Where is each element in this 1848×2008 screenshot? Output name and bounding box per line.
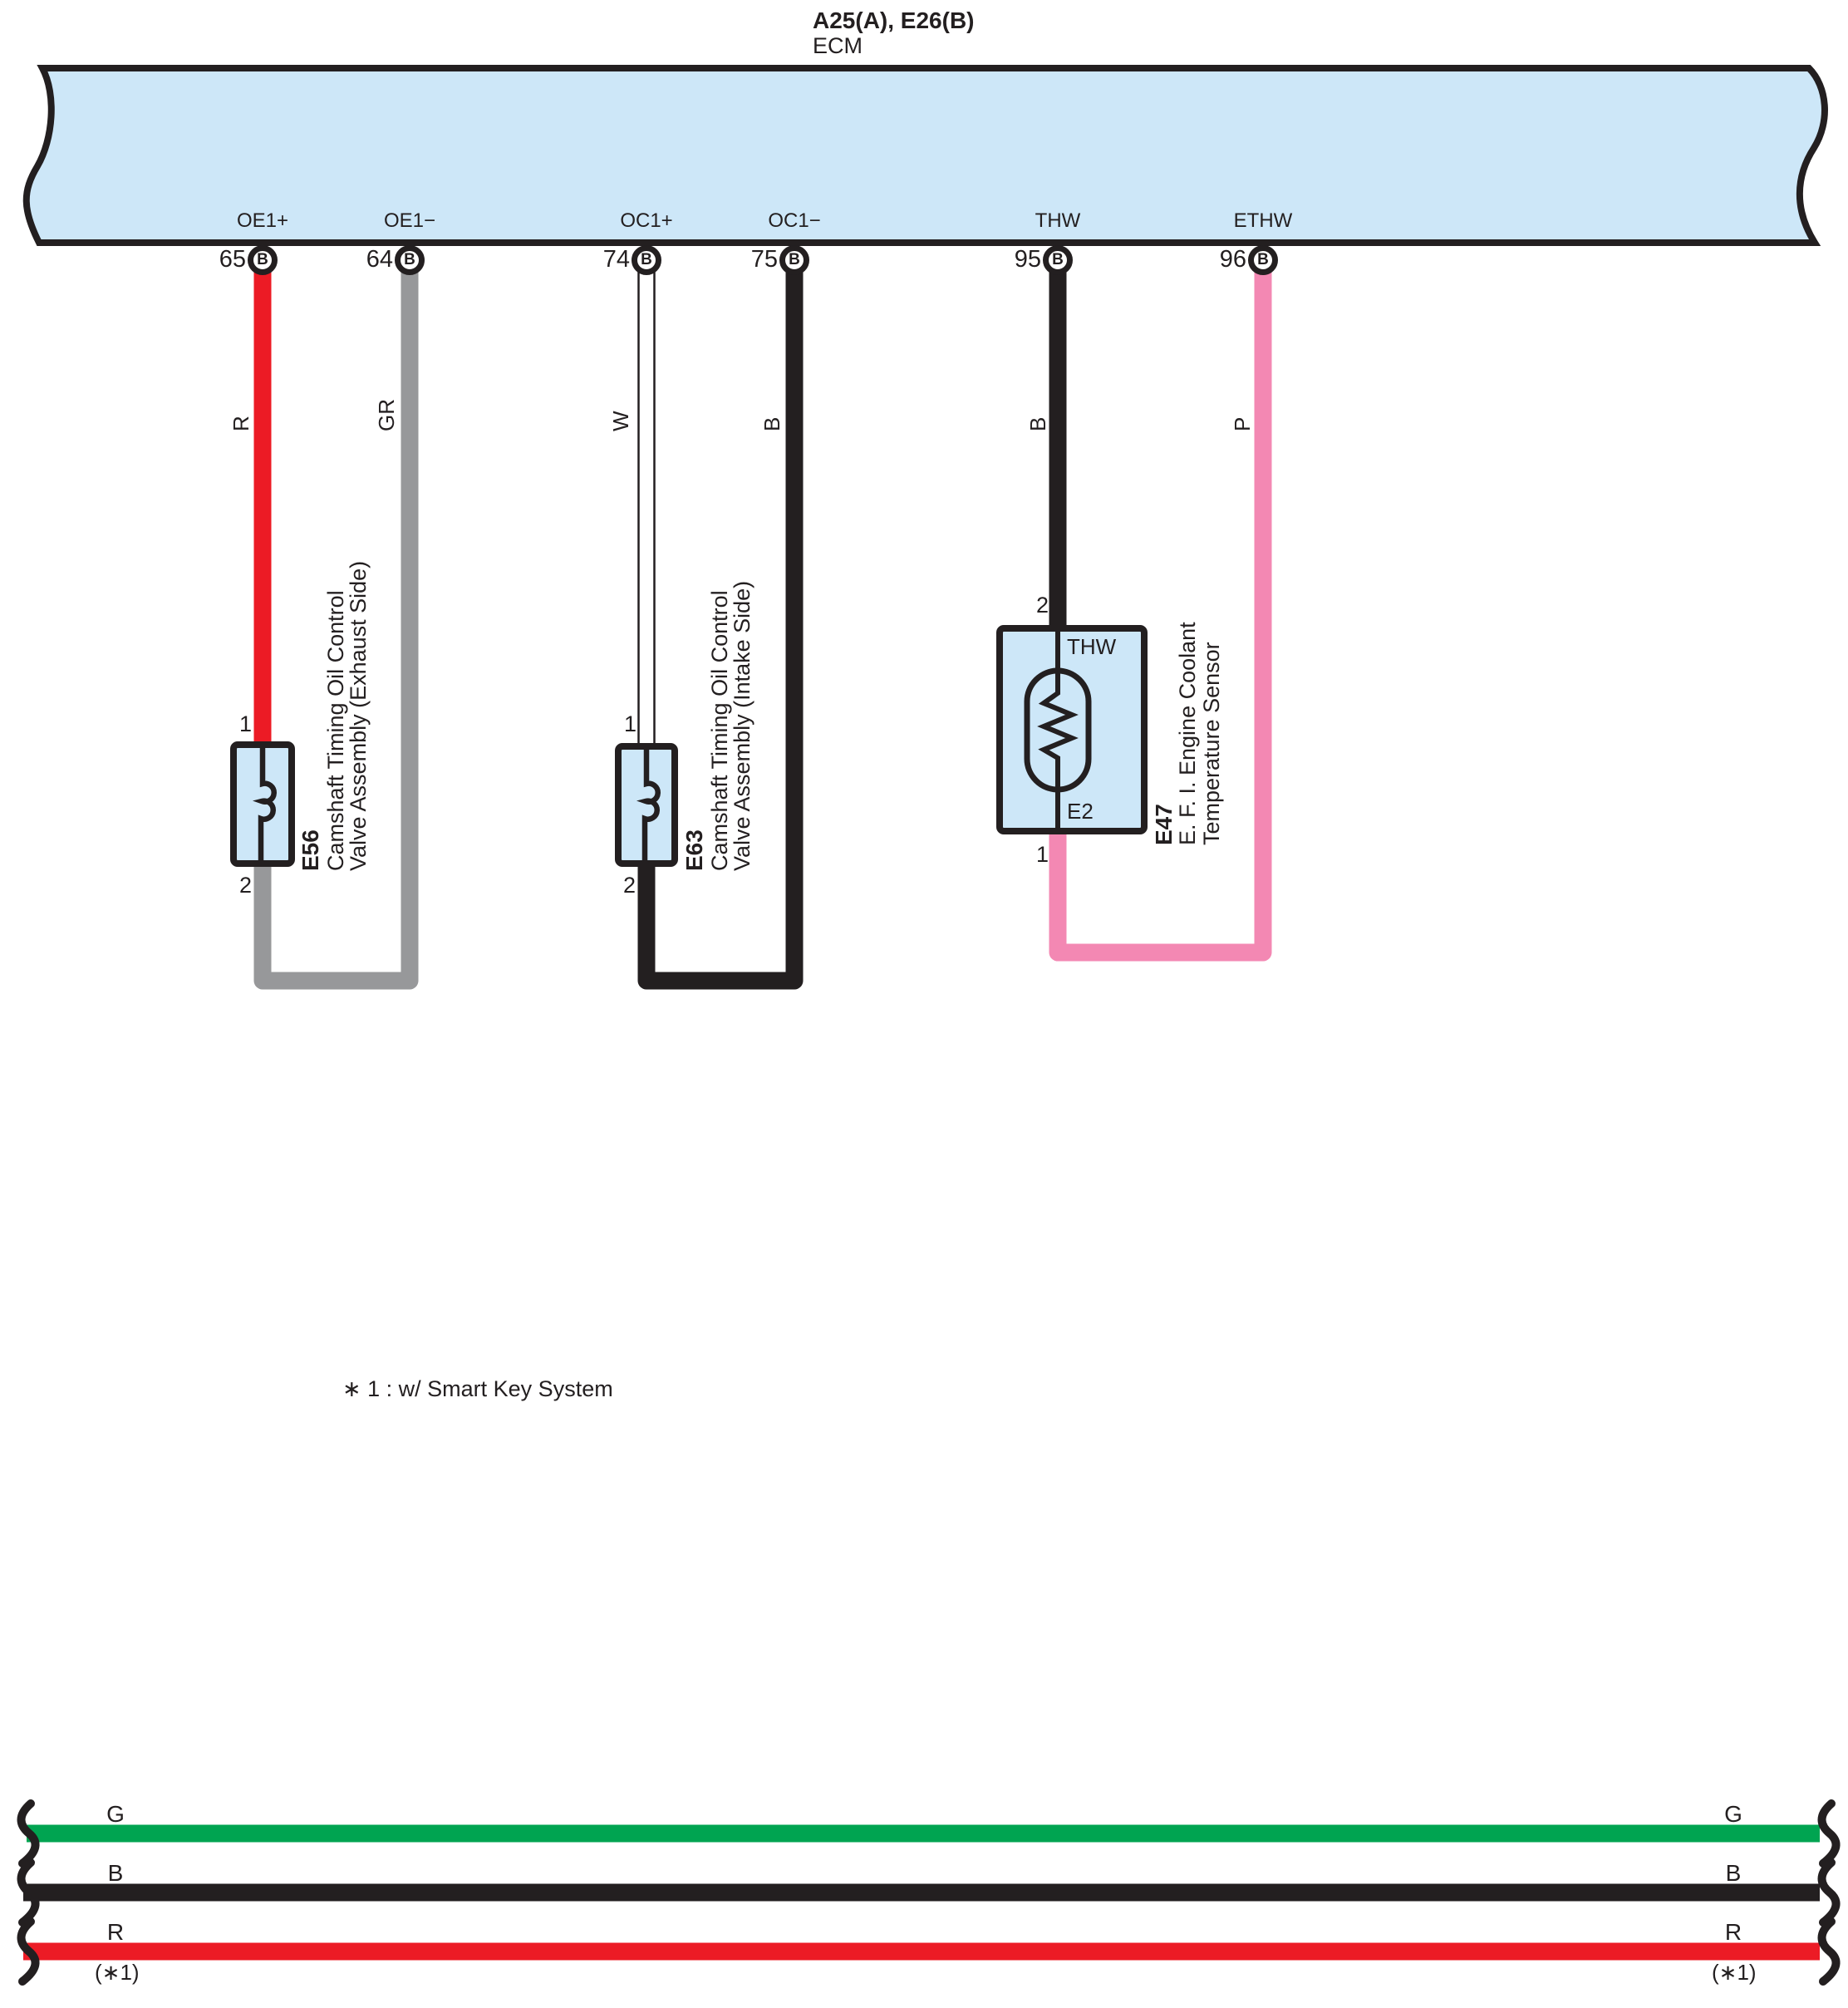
- break-squiggle-right-green: [1822, 1804, 1836, 1863]
- bus-label-b-left: B: [91, 1861, 140, 1886]
- pin-terminal-letter: B: [641, 251, 652, 268]
- e56-pin-1: 1: [227, 712, 252, 736]
- pin-label-oc1-plus: OC1+: [588, 210, 705, 232]
- e63-code: E63: [682, 829, 707, 871]
- pin-number-65: 65: [196, 247, 246, 273]
- wire-ethw-pink: [1058, 269, 1263, 952]
- bus-note-left: (∗1): [95, 1961, 140, 1984]
- diagram-graphics: [0, 0, 1848, 2008]
- e47-code: E47: [1152, 804, 1177, 845]
- break-squiggle-left-green: [22, 1804, 36, 1863]
- e47-terminal-thw: THW: [1067, 635, 1116, 658]
- break-squiggle-right-red: [1822, 1922, 1836, 1981]
- e63-name-line1: Camshaft Timing Oil Control: [708, 590, 732, 871]
- e47-pin-1: 1: [1024, 843, 1049, 867]
- pin-number-95: 95: [991, 247, 1041, 273]
- e56-name-line2: Valve Assembly (Exhaust Side): [346, 561, 371, 871]
- connector-title: A25(A), E26(B): [813, 8, 974, 33]
- e63-name-line2: Valve Assembly (Intake Side): [730, 581, 754, 871]
- break-squiggle-left-black: [22, 1863, 36, 1922]
- wire-color-b1: B: [760, 417, 784, 431]
- bus-label-g-right: G: [1708, 1802, 1758, 1827]
- pin-label-thw: THW: [1000, 210, 1116, 232]
- module-title: ECM: [813, 34, 863, 58]
- pin-label-ethw: ETHW: [1205, 210, 1321, 232]
- e56-code: E56: [298, 829, 323, 871]
- wire-color-gr: GR: [375, 399, 398, 431]
- e47-name-line1: E. F. I. Engine Coolant: [1176, 622, 1200, 845]
- wire-color-b2: B: [1026, 417, 1049, 431]
- pin-terminal-letter: B: [1257, 251, 1269, 268]
- wiring-diagram: A25(A), E26(B) ECM OE1+ OE1− OC1+ OC1− T…: [0, 0, 1848, 2008]
- break-squiggle-right-black: [1822, 1863, 1836, 1922]
- pin-terminal-letter: B: [1052, 251, 1064, 268]
- pin-terminal-75: B: [779, 245, 809, 275]
- pin-number-75: 75: [728, 247, 778, 273]
- e56-pin-2: 2: [227, 874, 252, 898]
- pin-terminal-74: B: [632, 245, 661, 275]
- pin-label-oc1-minus: OC1−: [736, 210, 853, 232]
- smart-key-note: ∗ 1 : w/ Smart Key System: [342, 1377, 613, 1401]
- pin-terminal-64: B: [395, 245, 425, 275]
- bus-label-g-left: G: [91, 1802, 140, 1827]
- e56-name-line1: Camshaft Timing Oil Control: [324, 590, 348, 871]
- pin-label-oe1-minus: OE1−: [351, 210, 468, 232]
- pin-terminal-95: B: [1043, 245, 1073, 275]
- bus-note-right: (∗1): [1712, 1961, 1757, 1984]
- e63-pin-2: 2: [611, 874, 636, 898]
- wire-color-r: R: [229, 416, 253, 431]
- bus-label-b-right: B: [1708, 1861, 1758, 1886]
- pin-number-96: 96: [1197, 247, 1246, 273]
- pin-terminal-65: B: [248, 245, 278, 275]
- pin-number-74: 74: [580, 247, 630, 273]
- wire-color-w: W: [609, 411, 632, 431]
- bus-label-r-right: R: [1708, 1920, 1758, 1945]
- e63-pin-1: 1: [612, 712, 636, 736]
- pin-terminal-letter: B: [789, 251, 800, 268]
- pin-number-64: 64: [343, 247, 393, 273]
- pin-label-oe1-plus: OE1+: [204, 210, 321, 232]
- break-squiggle-left-red: [22, 1922, 36, 1981]
- wire-color-p: P: [1231, 417, 1254, 431]
- e47-terminal-e2: E2: [1067, 800, 1094, 823]
- pin-terminal-letter: B: [404, 251, 415, 268]
- bus-label-r-left: R: [91, 1920, 140, 1945]
- e47-pin-2: 2: [1024, 593, 1049, 618]
- pin-terminal-96: B: [1248, 245, 1278, 275]
- e47-name-line2: Temperature Sensor: [1200, 642, 1224, 845]
- pin-terminal-letter: B: [257, 251, 268, 268]
